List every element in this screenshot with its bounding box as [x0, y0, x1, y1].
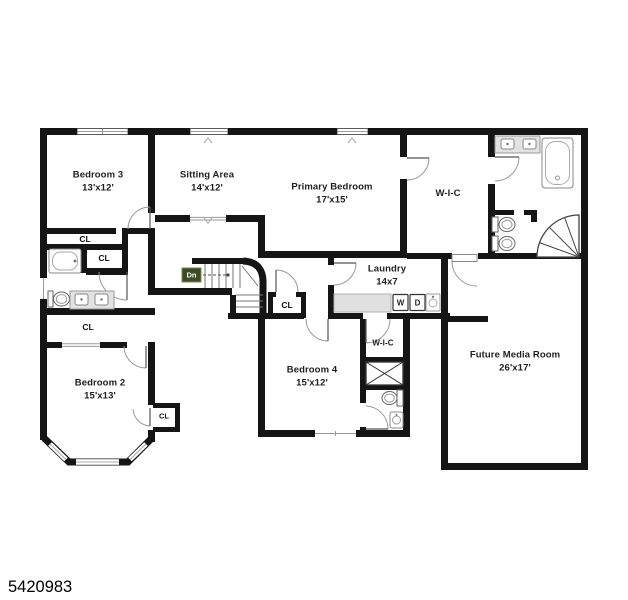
media-room-door-panel [452, 255, 477, 262]
room-label-bedroom-4-wic: W-I-C [372, 339, 393, 348]
washer-label: W [397, 299, 405, 308]
bedroom-4-bathroom-fixtures [366, 362, 403, 428]
room-label-bedroom-3: Bedroom 3 13'x12' [73, 170, 124, 195]
floor-plan-drawing [0, 0, 628, 600]
stair-curved-wall [243, 261, 263, 316]
bay-window-wall [44, 438, 152, 462]
primary-bathroom-fixtures [492, 136, 579, 257]
closet-label: CL [82, 322, 93, 332]
closet-label: CL [98, 253, 109, 263]
room-label-primary-bedroom: Primary Bedroom 17'x15' [291, 182, 372, 207]
closet-label: CL [281, 300, 292, 310]
room-label-bedroom-4: Bedroom 4 15'x12' [287, 365, 338, 390]
photo-id: 5420983 [8, 578, 72, 597]
closet-label: CL [79, 234, 90, 244]
closet-label: CL [159, 412, 169, 421]
room-label-laundry: Laundry 14x7 [368, 264, 406, 289]
floor-plan: Bedroom 3 13'x12' Sitting Area 14'x12' P… [0, 0, 628, 600]
room-label-sitting-area: Sitting Area 14'x12' [180, 170, 234, 195]
dryer-label: D [415, 299, 421, 308]
room-label-primary-wic: W-I-C [435, 188, 460, 201]
laundry-fixtures [334, 294, 440, 312]
stairs-down-label: Dn [187, 271, 197, 280]
room-label-future-media-room: Future Media Room 26'x17' [470, 350, 560, 375]
room-label-bedroom-2: Bedroom 2 15'x13' [75, 378, 126, 403]
